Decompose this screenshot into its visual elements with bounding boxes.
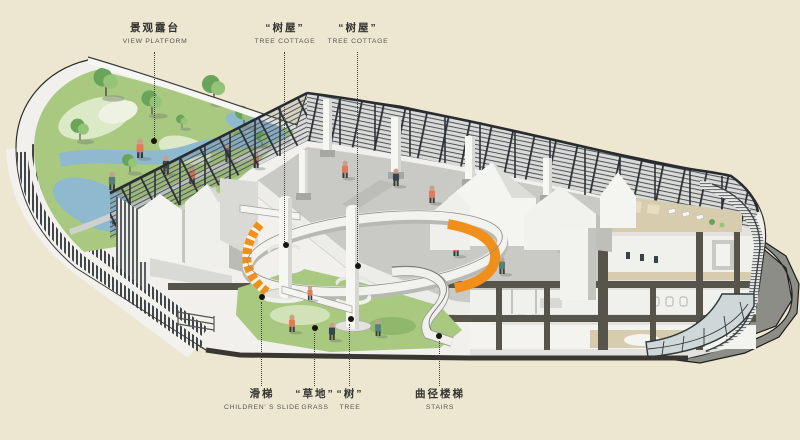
fixtures xyxy=(652,297,687,306)
axonometric-illustration xyxy=(0,0,800,440)
architectural-section-diagram: 景观露台 VIEW PLATFORM “树屋” TREE COTTAGE “树屋… xyxy=(0,0,800,440)
